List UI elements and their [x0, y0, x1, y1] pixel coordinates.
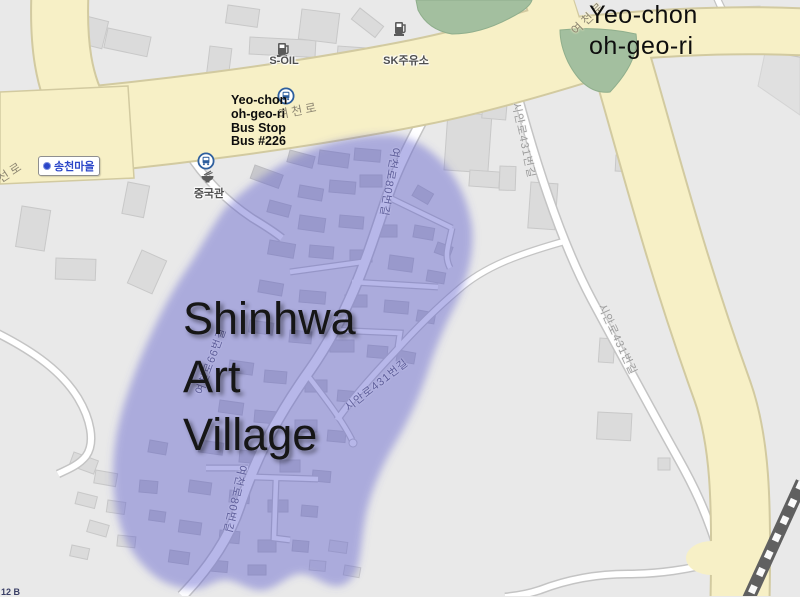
poi-label-china-restaurant[interactable]: 중국관 [189, 185, 229, 201]
village-title-line: Shinhwa [183, 290, 356, 348]
building-footprint [55, 258, 96, 280]
map-viewport[interactable]: S-OIL SK주유소 송천마을 중국관 여천로 여천로 선로 여천로80번길 … [0, 0, 800, 596]
building-footprint [658, 458, 670, 470]
building-footprint [597, 412, 632, 441]
building-footprint [499, 166, 516, 191]
poi-label-s-oil[interactable]: S-OIL [262, 55, 306, 67]
bus-note-line: oh-geo-ri [231, 108, 287, 122]
building-footprint [225, 5, 259, 27]
village-title-line: Art [183, 348, 356, 406]
building-footprint [298, 9, 339, 43]
building-footprint [469, 170, 500, 188]
annotation-village-title: Shinhwa Art Village [183, 290, 356, 464]
village-title-line: Village [183, 406, 356, 464]
bus-note-line: Bus Stop [231, 122, 287, 136]
poi-label-sk-station[interactable]: SK주유소 [379, 52, 433, 68]
annotation-area-title: Yeo-chon oh-geo-ri [589, 0, 698, 62]
area-title-line: oh-geo-ri [589, 31, 698, 62]
village-box-text: 송천마을 [54, 158, 94, 174]
building-footprint [16, 206, 51, 251]
bus-note-line: Yeo-chon [231, 94, 287, 108]
village-marker-icon [43, 162, 51, 170]
bus-note-line: Bus #226 [231, 135, 287, 149]
area-title-line: Yeo-chon [589, 0, 698, 31]
annotation-bus-stop: Yeo-chon oh-geo-ri Bus Stop Bus #226 [231, 94, 287, 149]
map-canvas[interactable] [0, 0, 800, 596]
poi-label-songcheon-village[interactable]: 송천마을 [38, 156, 100, 176]
building-footprint [444, 112, 492, 173]
